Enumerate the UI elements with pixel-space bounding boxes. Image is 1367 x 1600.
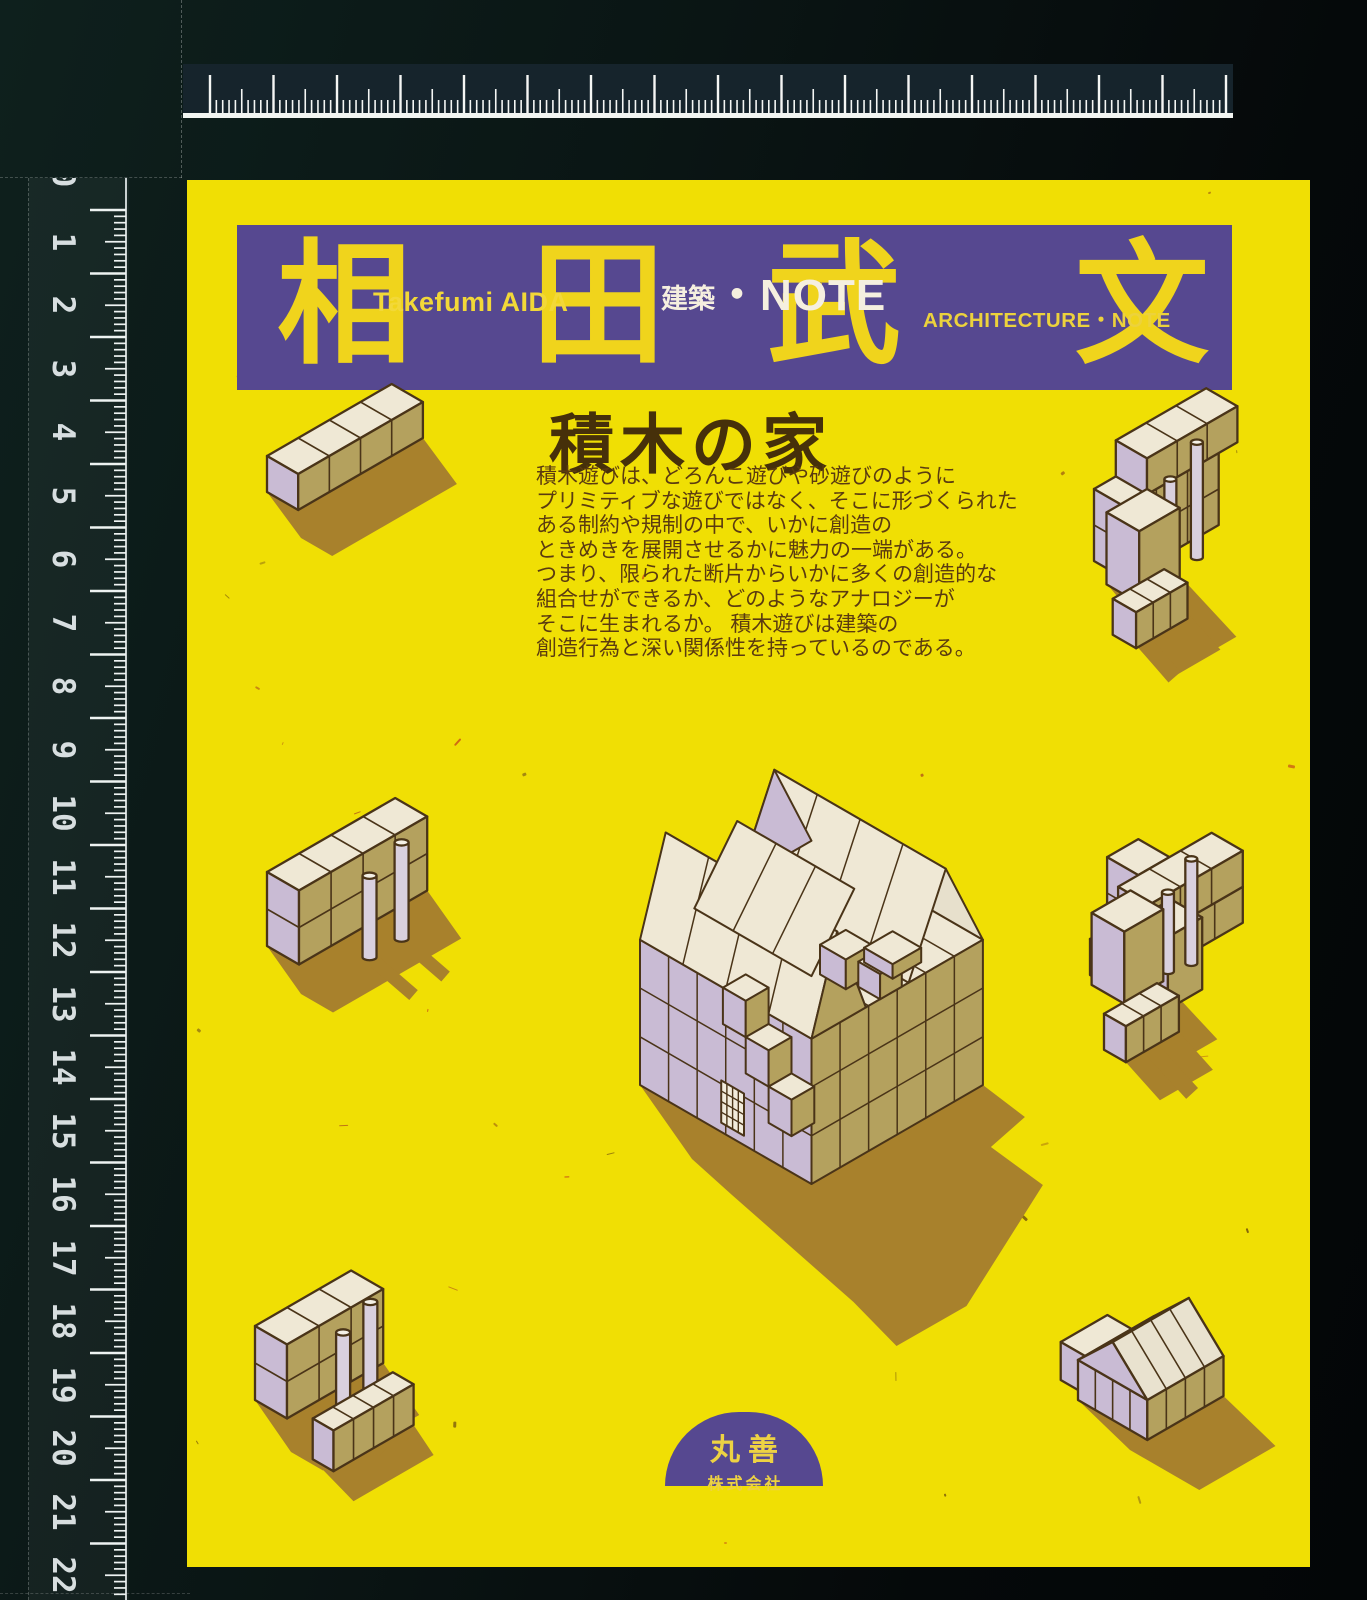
ruler-number: 6: [45, 539, 81, 579]
ruler-number: 16: [45, 1174, 81, 1214]
paper-fiber: [195, 1441, 198, 1445]
scan-edge-vertical: [181, 0, 182, 178]
ruler-number: 20: [45, 1428, 81, 1468]
series-title-en: ARCHITECTURE・NOTE: [923, 303, 1171, 333]
publisher-suffix: 株式会社: [665, 1470, 823, 1494]
intro-line: 創造行為と深い関係性を持っているのである。: [536, 637, 896, 662]
ruler-number: 10: [45, 793, 81, 833]
ruler-number: 14: [45, 1047, 81, 1087]
paper-fiber: [1288, 764, 1296, 768]
paper-fiber: [339, 1125, 348, 1126]
intro-line: そこに生まれるか。 積木遊びは建築の: [536, 613, 896, 638]
ruler-number: 21: [45, 1492, 81, 1532]
ruler-number: 5: [45, 476, 81, 516]
ruler-number: 18: [45, 1301, 81, 1341]
intro-line: つまり、限られた断片からいかに多くの創造的な: [536, 563, 896, 588]
block-structure-illustration-top-right: [1030, 365, 1310, 700]
ruler-number: 7: [45, 603, 81, 643]
paper-fiber: [895, 1372, 897, 1381]
intro-line: ある制約や規制の中で、いかに創造の: [536, 514, 896, 539]
ruler-number: 1: [45, 222, 81, 262]
left-ruler: 012345678910111213141516171819202122: [28, 178, 129, 1600]
photo-stage: 012345678910111213141516171819202122 相 田…: [0, 0, 1367, 1600]
publisher-name: 丸善: [665, 1425, 823, 1469]
ruler-number: 13: [45, 984, 81, 1024]
intro-line: 積木遊びは、どろんこ遊びや砂遊びのように: [536, 465, 896, 490]
ruler-number: 11: [45, 857, 81, 897]
paper-fiber: [1137, 1496, 1142, 1505]
ruler-number: 12: [45, 920, 81, 960]
intro-text: 積木遊びは、どろんこ遊びや砂遊びのように プリミティブな遊びではなく、そこに形づ…: [536, 465, 896, 662]
paper-fiber: [724, 1542, 727, 1544]
paper-fiber: [944, 1494, 947, 1497]
top-ruler: [183, 64, 1233, 118]
ruler-number: 3: [45, 349, 81, 389]
block-wall-illustration-mid-left: [225, 790, 465, 1060]
author-romaji: Takefumi AIDA: [373, 287, 569, 318]
paper-fiber: [454, 738, 462, 746]
paper-fiber: [281, 742, 283, 745]
paper-fiber: [196, 1028, 201, 1033]
intro-line: 組合せができるか、どのようなアナロジーが: [536, 588, 896, 613]
intro-line: プリミティブな遊びではなく、そこに形づくられた: [536, 490, 896, 515]
paper-fiber: [255, 686, 260, 690]
block-wall-illustration-bottom-left: [215, 1240, 465, 1515]
block-row-illustration-top-left: [215, 370, 465, 570]
ruler-number: 22: [45, 1555, 81, 1595]
paper-fiber: [224, 594, 230, 599]
series-title-jp: 建築 ・NOTE: [661, 273, 886, 319]
ruler-number: 17: [45, 1238, 81, 1278]
ruler-number: 8: [45, 666, 81, 706]
toy-block-house-main-illustration: [490, 665, 1070, 1370]
ruler-number: 0: [45, 178, 81, 198]
ruler-number: 4: [45, 412, 81, 452]
paper-fiber: [1208, 191, 1211, 194]
top-ruler-ticks: [183, 64, 1233, 118]
ruler-number: 19: [45, 1365, 81, 1405]
ruler-number: 9: [45, 730, 81, 770]
ruler-number: 15: [45, 1111, 81, 1151]
intro-line: ときめきを展開させるかに魅力の一端がある。: [536, 539, 896, 564]
ruler-number: 2: [45, 285, 81, 325]
book-cover: 相 田 武 文 Takefumi AIDA 建築 ・NOTE ARCHITECT…: [187, 180, 1310, 1567]
top-ruler-edge: [183, 113, 1233, 118]
